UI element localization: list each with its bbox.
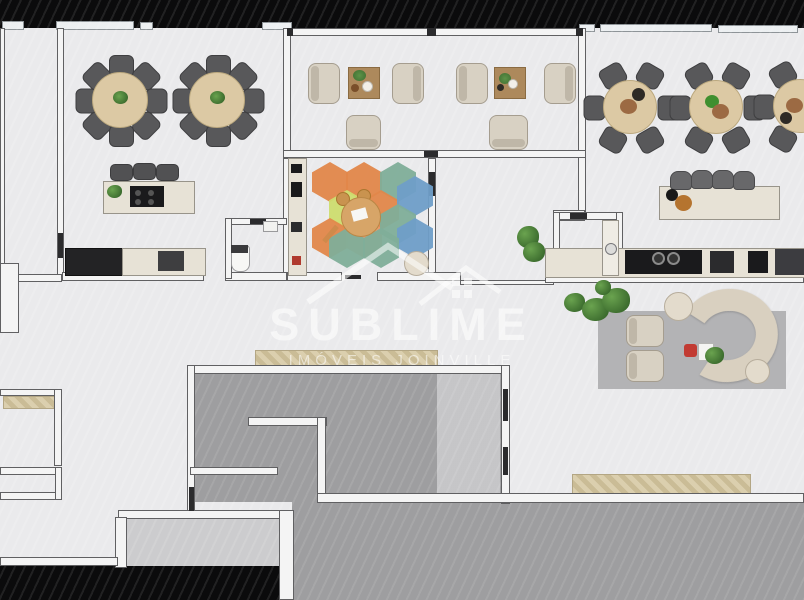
watermark-title: SUBLIME [252, 302, 552, 347]
kitchen2-appliance [748, 251, 768, 273]
chair [691, 170, 713, 189]
centerpiece-plant [113, 91, 128, 104]
terrace-edge-line [460, 280, 554, 285]
tall-plant [523, 242, 545, 262]
bar-stool [133, 163, 156, 180]
grill-burner [652, 252, 665, 265]
burner [148, 190, 154, 196]
pouf [664, 292, 693, 321]
bar-stool [156, 164, 179, 181]
burner [135, 199, 141, 205]
stair-block-right-wall [501, 365, 510, 504]
kitchen2-appliance [710, 251, 734, 273]
kitchen-appliance [158, 251, 184, 271]
floor-plan: SUBLIME IMÓVEIS JOINVILLE [0, 0, 804, 600]
table-bowl [497, 84, 504, 91]
red-side-table [684, 344, 697, 357]
service-sink [605, 243, 617, 255]
chair [146, 89, 168, 114]
armchair [456, 63, 488, 104]
concrete-lower-terrace [292, 498, 804, 600]
armchair [308, 63, 340, 104]
door-leaf [503, 447, 508, 475]
terrace-planter [572, 474, 751, 495]
left-annex-wall [55, 467, 62, 500]
wall-pillar [427, 28, 436, 36]
door-leaf [503, 389, 508, 421]
chair [733, 171, 755, 190]
armchair [346, 115, 381, 150]
chair [243, 89, 265, 114]
shelf-item [291, 222, 302, 232]
burner [148, 199, 154, 205]
stair-inner-wall [248, 417, 327, 426]
stair-inner-wall [190, 467, 278, 475]
left-edge-wall [0, 28, 5, 264]
door-leaf [58, 233, 63, 258]
window-segment [718, 25, 798, 33]
left-annex-wall [0, 492, 62, 500]
bowl [620, 99, 637, 114]
service-room-top-wall [553, 212, 623, 220]
concrete-light-patch [437, 374, 500, 496]
door-leaf [570, 213, 587, 219]
window-segment [56, 21, 134, 30]
void-black-area [0, 566, 280, 600]
table-bowl [351, 84, 359, 92]
ramp-room-top-wall [118, 510, 294, 519]
bowl [712, 104, 729, 119]
armchair [392, 63, 424, 104]
armchair [544, 63, 576, 104]
bowl [786, 98, 803, 113]
lounge-chair [626, 315, 664, 347]
left-annex-wall [0, 389, 62, 396]
bottom-wall-segment [225, 272, 287, 281]
pouf [745, 359, 770, 384]
plant [705, 347, 724, 364]
lounge-chair [626, 350, 664, 382]
door-leaf [189, 487, 194, 511]
dining-lounge-divider-wall [283, 28, 291, 159]
wc-sink [263, 221, 278, 232]
ramp-room-right-wall [279, 510, 294, 600]
kitchen2-appliance [775, 249, 804, 275]
chair [670, 171, 692, 190]
chair [109, 125, 134, 147]
left-annex-planter [3, 396, 55, 409]
door-leaf [345, 275, 361, 279]
left-balcony-box [0, 263, 19, 333]
centerpiece-plant [210, 91, 225, 104]
window-segment [600, 24, 712, 32]
wall-pillar [576, 28, 583, 36]
left-annex-wall [54, 389, 62, 466]
burner [135, 190, 141, 196]
bowl [632, 88, 645, 101]
shelf-item [291, 182, 302, 197]
ramp-room-floor [127, 518, 279, 568]
bar-stool [110, 164, 133, 181]
bottom-wall-segment [18, 274, 62, 282]
window-segment [2, 21, 24, 30]
door-leaf [424, 151, 438, 157]
table-cup [508, 79, 518, 89]
pouf [404, 251, 429, 276]
toilet-tank [231, 245, 248, 253]
island-plant [107, 185, 122, 198]
left-annex-wall [0, 467, 62, 475]
plate [675, 195, 692, 211]
grill-burner [667, 252, 680, 265]
stair-inner-wall [317, 417, 326, 498]
shelf-item [291, 164, 302, 173]
ramp-room-west-wall [0, 557, 118, 566]
bowl [780, 112, 792, 124]
table-plant [353, 70, 366, 81]
window-segment [140, 22, 153, 30]
round-dining-table-8 [74, 54, 166, 146]
round-dining-table-8 [171, 54, 263, 146]
chair [206, 125, 231, 147]
armchair [489, 115, 528, 150]
bush [595, 280, 611, 295]
chair [712, 170, 734, 189]
table-cup [362, 81, 373, 92]
lower-terrace-wall [317, 493, 804, 503]
stair-block-top-wall [187, 365, 510, 374]
kitchen-dark-cabinet [65, 248, 125, 276]
shelf-item-red [292, 256, 301, 265]
wall-pillar [287, 28, 293, 36]
